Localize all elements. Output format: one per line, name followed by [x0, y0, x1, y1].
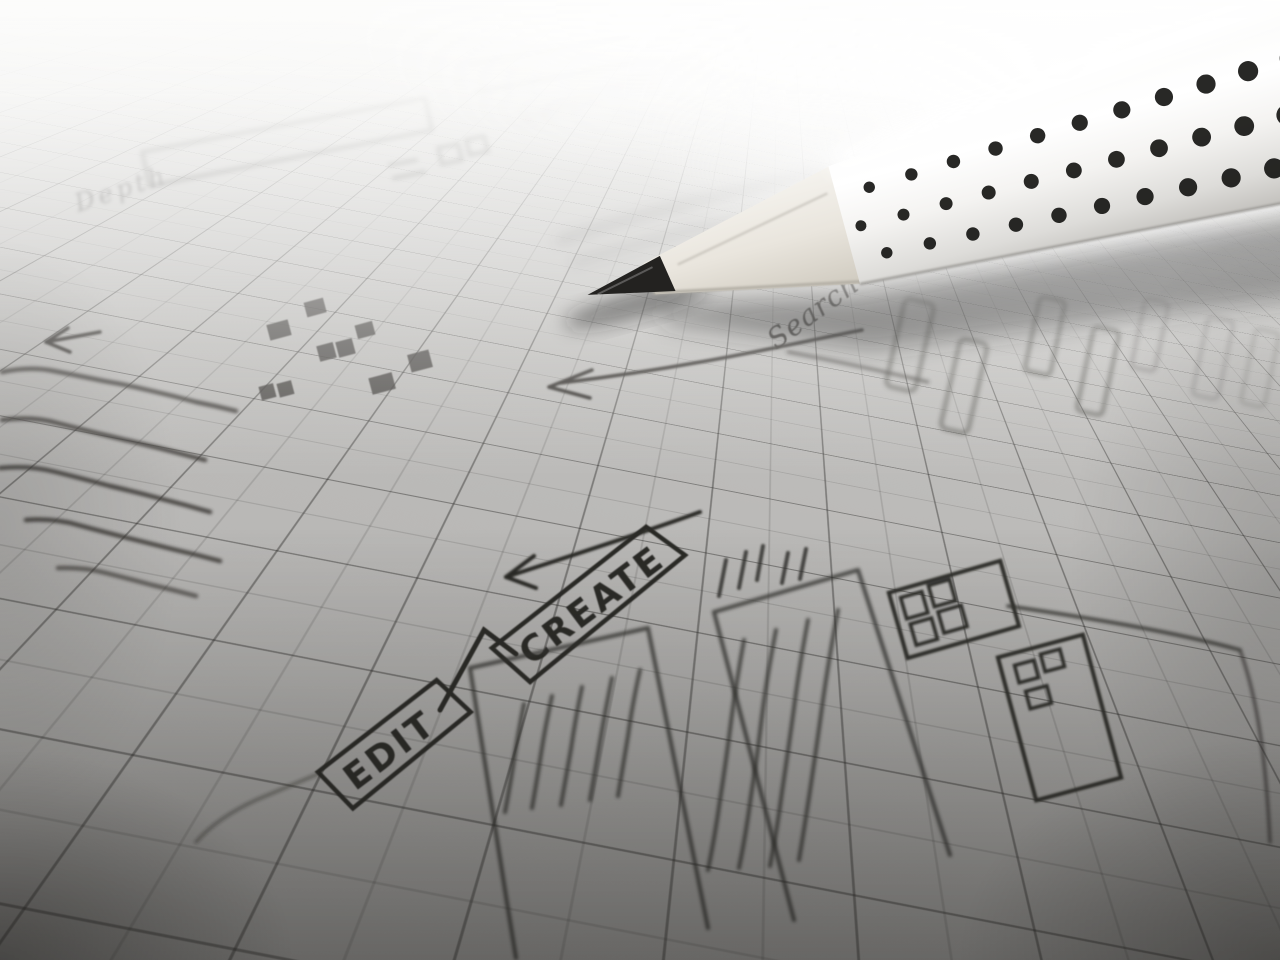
- graph-paper: [0, 0, 1280, 960]
- photo-stage: Depth Search: [0, 0, 1280, 960]
